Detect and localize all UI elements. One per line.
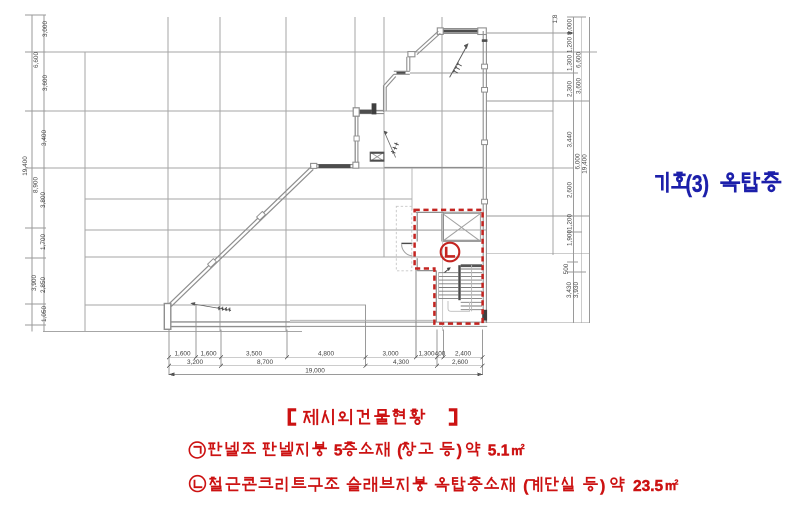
svg-text:(3): (3) [686, 171, 710, 198]
svg-text:3,800: 3,800 [40, 192, 47, 208]
svg-text:23.5: 23.5 [633, 478, 664, 495]
svg-text:3,000: 3,000 [567, 19, 574, 35]
svg-text:): ) [457, 443, 462, 460]
svg-text:5: 5 [334, 443, 343, 460]
svg-text:500: 500 [563, 263, 570, 274]
svg-text:2,600: 2,600 [452, 359, 468, 366]
svg-text:2,400: 2,400 [455, 351, 471, 358]
svg-text:1,300: 1,300 [419, 351, 435, 358]
svg-text:19,400: 19,400 [582, 154, 589, 174]
svg-text:3,500: 3,500 [246, 351, 262, 358]
svg-text:): ) [600, 478, 605, 495]
svg-text:3,000: 3,000 [383, 351, 399, 358]
svg-text:(: ( [397, 443, 403, 460]
svg-text:8,900: 8,900 [33, 177, 40, 193]
svg-text:6,600: 6,600 [33, 52, 40, 68]
svg-text:3,200: 3,200 [187, 359, 203, 366]
svg-text:3,930: 3,930 [573, 282, 580, 298]
svg-text:19,000: 19,000 [305, 368, 325, 375]
svg-text:400: 400 [435, 351, 446, 358]
svg-text:3,600: 3,600 [42, 75, 49, 91]
svg-text:1,900: 1,900 [567, 230, 574, 246]
svg-text:3,400: 3,400 [41, 130, 48, 146]
svg-text:1,200: 1,200 [567, 37, 574, 53]
svg-text:3,600: 3,600 [576, 78, 583, 94]
svg-text:3,900: 3,900 [31, 275, 38, 291]
svg-text:1,050: 1,050 [41, 306, 48, 322]
svg-text:19,400: 19,400 [22, 156, 29, 176]
svg-text:3,440: 3,440 [567, 131, 574, 147]
svg-text:1,8: 1,8 [552, 14, 559, 23]
svg-text:1,700: 1,700 [40, 234, 47, 250]
svg-text:5.1: 5.1 [488, 443, 510, 460]
svg-text:2: 2 [521, 444, 525, 451]
svg-text:2,850: 2,850 [40, 277, 47, 293]
svg-text:8,700: 8,700 [257, 359, 273, 366]
svg-text:1,300: 1,300 [567, 55, 574, 71]
svg-text:3,430: 3,430 [566, 282, 573, 298]
svg-text:1,200: 1,200 [567, 214, 574, 230]
svg-text:4,300: 4,300 [393, 359, 409, 366]
svg-text:4,800: 4,800 [318, 351, 334, 358]
svg-text:1,600: 1,600 [175, 351, 191, 358]
svg-text:3,000: 3,000 [42, 21, 49, 37]
svg-text:2,300: 2,300 [567, 81, 574, 97]
svg-text:2: 2 [675, 479, 679, 486]
svg-text:6,600: 6,600 [576, 52, 583, 68]
svg-text:1,600: 1,600 [201, 351, 217, 358]
svg-text:2,600: 2,600 [567, 182, 574, 198]
